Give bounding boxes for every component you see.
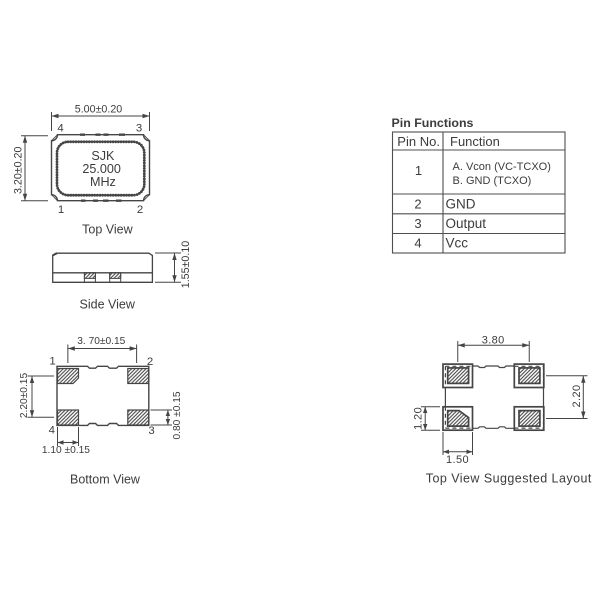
- svg-text:2.20±0.15: 2.20±0.15: [19, 373, 30, 419]
- svg-text:Function: Function: [450, 134, 500, 149]
- svg-text:3. 70±0.15: 3. 70±0.15: [77, 336, 125, 347]
- svg-text:1.20: 1.20: [413, 407, 425, 430]
- svg-text:Pin Functions: Pin Functions: [392, 116, 474, 130]
- svg-text:5.00±0.20: 5.00±0.20: [75, 103, 123, 115]
- svg-text:2: 2: [414, 197, 421, 212]
- svg-text:Side View: Side View: [80, 298, 136, 312]
- svg-text:Vcc: Vcc: [446, 236, 469, 251]
- svg-text:MHz: MHz: [90, 175, 116, 189]
- svg-text:B. GND (TCXO): B. GND (TCXO): [453, 175, 532, 187]
- svg-text:4: 4: [57, 122, 63, 134]
- svg-text:1.10 ±0.15: 1.10 ±0.15: [42, 445, 90, 456]
- svg-text:SJK: SJK: [91, 149, 115, 163]
- svg-text:A. Vcon (VC-TCXO): A. Vcon (VC-TCXO): [453, 161, 551, 173]
- svg-text:4: 4: [49, 425, 55, 437]
- svg-text:0.80 ±0.15: 0.80 ±0.15: [172, 391, 183, 439]
- svg-text:1: 1: [49, 356, 55, 368]
- svg-text:1.50: 1.50: [446, 454, 469, 466]
- svg-text:25.000: 25.000: [82, 162, 121, 176]
- svg-text:3.20±0.20: 3.20±0.20: [12, 147, 24, 195]
- svg-text:1: 1: [415, 163, 422, 178]
- svg-text:Output: Output: [446, 216, 487, 231]
- svg-text:3: 3: [414, 216, 421, 231]
- svg-text:2: 2: [137, 204, 143, 216]
- svg-text:GND: GND: [446, 197, 476, 212]
- svg-text:Pin No.: Pin No.: [397, 134, 440, 149]
- svg-text:Top View: Top View: [82, 222, 133, 236]
- svg-text:Top View Suggested Layout: Top View Suggested Layout: [426, 471, 592, 485]
- svg-text:3: 3: [136, 122, 142, 134]
- svg-text:2.20: 2.20: [571, 384, 583, 407]
- svg-text:2: 2: [147, 356, 153, 368]
- svg-text:3.80: 3.80: [482, 334, 505, 346]
- svg-text:1: 1: [58, 204, 64, 216]
- svg-text:1.55±0.10: 1.55±0.10: [180, 241, 192, 289]
- svg-text:4: 4: [414, 236, 421, 251]
- svg-text:3: 3: [148, 425, 154, 437]
- svg-text:Bottom View: Bottom View: [70, 473, 141, 487]
